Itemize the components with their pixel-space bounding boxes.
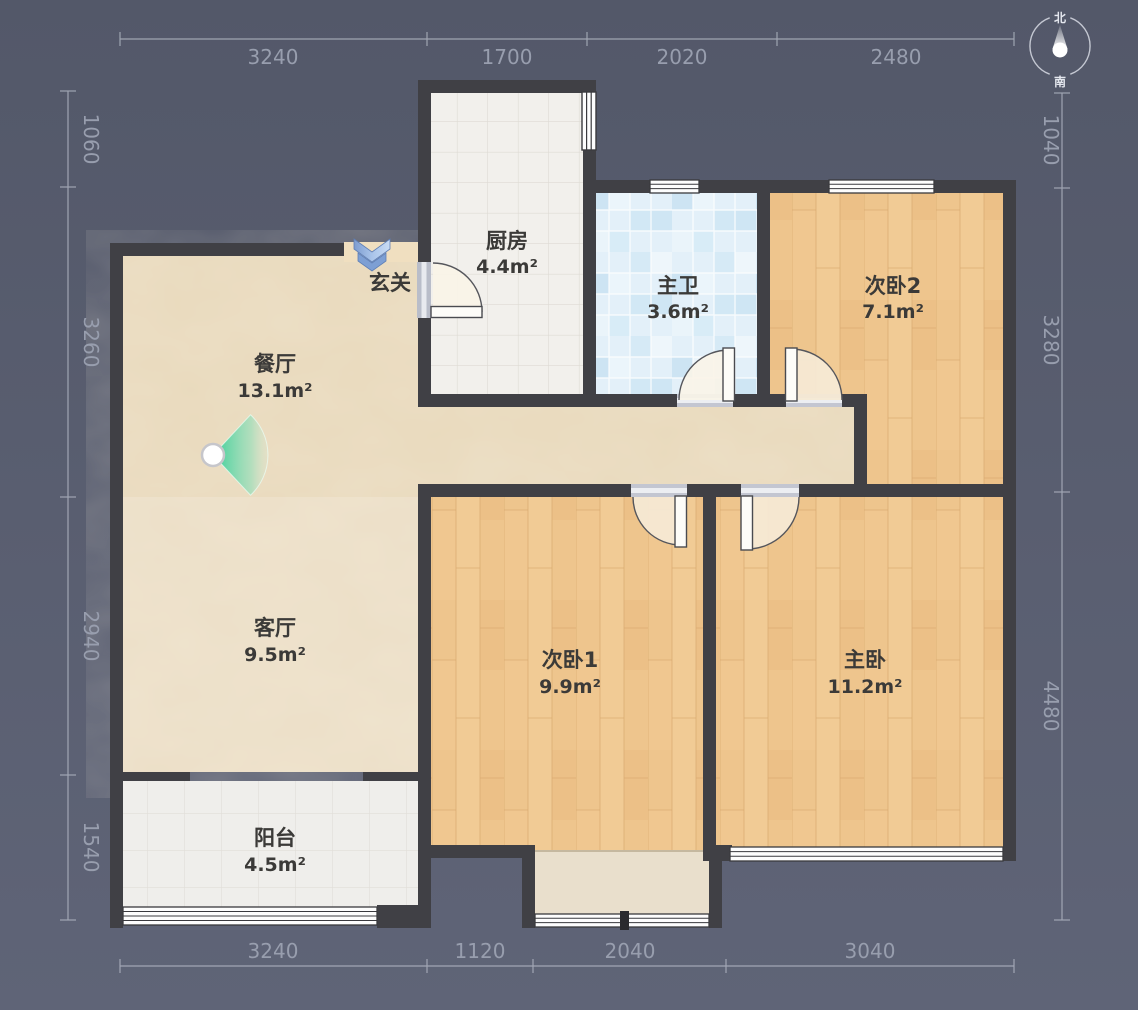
- dim-left-3: 2940: [79, 611, 103, 662]
- wall-outer-left: [110, 243, 123, 928]
- bath-area: 3.6m²: [647, 301, 709, 323]
- window-center-mullion: [620, 911, 629, 930]
- bed1-label: 次卧1: [542, 648, 599, 672]
- compass-needle-hub: [1053, 43, 1068, 58]
- master-area: 11.2m²: [828, 676, 903, 698]
- dim-top-3: 2020: [657, 45, 708, 69]
- floor-plan-stage: 餐厅 13.1m² 厨房 4.4m² 玄关 主卫 3.6m² 次卧2 7.1m²…: [0, 0, 1138, 1010]
- bath-top-window: [650, 180, 699, 193]
- balcony-area: 4.5m²: [244, 854, 306, 876]
- bed2-area: 7.1m²: [862, 301, 924, 323]
- compass-south-label: 南: [1054, 74, 1066, 89]
- dim-left-4: 1540: [79, 822, 103, 873]
- balcony-bottom-window: [123, 907, 377, 925]
- camera-hub-icon[interactable]: [202, 444, 224, 466]
- wall-bedroom-divider: [703, 484, 716, 858]
- living-area: 9.5m²: [244, 644, 306, 666]
- wall-kitchen-top: [418, 80, 596, 93]
- entry-label: 玄关: [369, 271, 411, 295]
- bed1-area: 9.9m²: [539, 676, 601, 698]
- kitchen-label: 厨房: [486, 229, 528, 253]
- bath-label: 主卫: [657, 274, 699, 298]
- dim-right-2: 3280: [1039, 315, 1063, 366]
- kitchen-area: 4.4m²: [476, 256, 538, 278]
- wall-outer-right: [1003, 180, 1016, 861]
- dim-bottom-3: 2040: [605, 939, 656, 963]
- bed1-floor[interactable]: [431, 497, 703, 852]
- dim-top-1: 3240: [248, 45, 299, 69]
- compass-north-label: 北: [1054, 10, 1066, 25]
- platform-bottom-window: [535, 911, 709, 930]
- master-door-sill: [741, 484, 799, 497]
- platform-floor: [535, 850, 709, 916]
- wall-balcony-corner: [377, 905, 431, 928]
- wall-bath-bed2-top: [583, 180, 1016, 193]
- dim-right-1: 1040: [1039, 115, 1063, 166]
- kitchen-right-window: [582, 92, 596, 150]
- wall-hall-right: [854, 394, 867, 497]
- wall-bath-right: [757, 180, 770, 407]
- wall-bed1-bottom: [418, 845, 535, 858]
- dim-bottom-1: 3240: [248, 939, 299, 963]
- wall-center-vertical: [418, 484, 431, 928]
- dim-top-2: 1700: [482, 45, 533, 69]
- entry-door-sill: [417, 262, 431, 318]
- bed1-door-sill: [631, 484, 687, 497]
- bed2-top-window: [829, 180, 934, 193]
- wall-platform-left: [522, 845, 535, 928]
- dim-top-4: 2480: [871, 45, 922, 69]
- balcony-label: 阳台: [254, 826, 296, 850]
- master-bottom-window: [730, 847, 1003, 861]
- master-label: 主卧: [844, 648, 886, 672]
- wall-hall-bottom: [418, 484, 1016, 497]
- dim-right-3: 4480: [1039, 681, 1063, 732]
- bed2-label: 次卧2: [865, 274, 922, 298]
- dim-bottom-4: 3040: [845, 939, 896, 963]
- master-floor[interactable]: [716, 497, 1003, 847]
- floor-plan-canvas: 餐厅 13.1m² 厨房 4.4m² 玄关 主卫 3.6m² 次卧2 7.1m²…: [0, 0, 1138, 1010]
- dim-bottom-2: 1120: [455, 939, 506, 963]
- dim-left-1: 1060: [79, 114, 103, 165]
- wall-master-stub: [703, 845, 732, 861]
- wall-kitchen-left-lower: [418, 318, 431, 407]
- dim-left-2: 3260: [79, 317, 103, 368]
- dining-area: 13.1m²: [238, 380, 313, 402]
- wall-kitchen-left-upper: [418, 80, 431, 262]
- living-label: 客厅: [254, 616, 296, 640]
- wall-dining-top: [110, 243, 344, 256]
- dining-label: 餐厅: [254, 352, 296, 376]
